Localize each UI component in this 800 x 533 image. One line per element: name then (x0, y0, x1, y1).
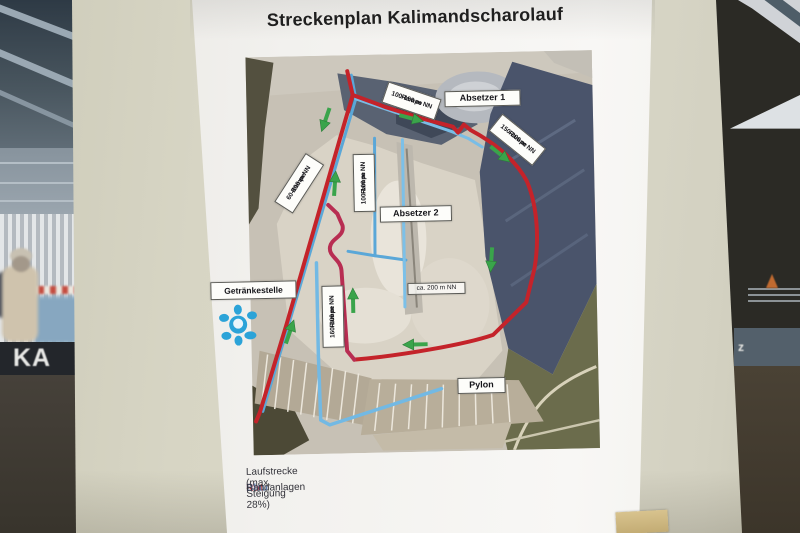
photo-of-route-poster: KA z Streckenplan Kalimandscharolauf (0, 0, 800, 533)
label-pylon: Pylon (457, 377, 505, 394)
water-splash-icon (216, 303, 261, 346)
traffic-cone (766, 274, 778, 288)
aerial-route-map: Absetzer 1 Rampe 100-150 m NN Rampe 150-… (245, 50, 601, 455)
label-text: 160-200 m NN (329, 295, 338, 338)
railing (748, 286, 800, 304)
label-text: 100-160 m NN (360, 162, 369, 205)
label-absetzer-1: Absetzer 1 (444, 90, 520, 108)
ka-sign-text: KA (13, 344, 51, 373)
label-rampe-100-160: Rampe 100-160 m NN (353, 154, 376, 212)
label-text: Getränkestelle (224, 284, 283, 296)
label-rampe-160-200: Rampe 160-200 m NN (321, 285, 344, 347)
bystander-head (12, 256, 30, 272)
sign-letter-fragment: z (738, 340, 744, 354)
bystander-person (2, 266, 38, 342)
adhesive-tape (615, 510, 668, 533)
label-text: Pylon (469, 380, 494, 392)
label-text: ca. 200 m NN (417, 284, 457, 293)
label-getraenkestelle: Getränkestelle (210, 280, 296, 300)
label-text: Absetzer 1 (460, 92, 506, 104)
label-text: Absetzer 2 (393, 208, 439, 220)
label-absetzer-2: Absetzer 2 (380, 205, 452, 223)
legend-definition-bandanlagen: Bandanlagen (246, 482, 305, 494)
label-ca-200-m-nn: ca. 200 m NN (407, 282, 465, 295)
